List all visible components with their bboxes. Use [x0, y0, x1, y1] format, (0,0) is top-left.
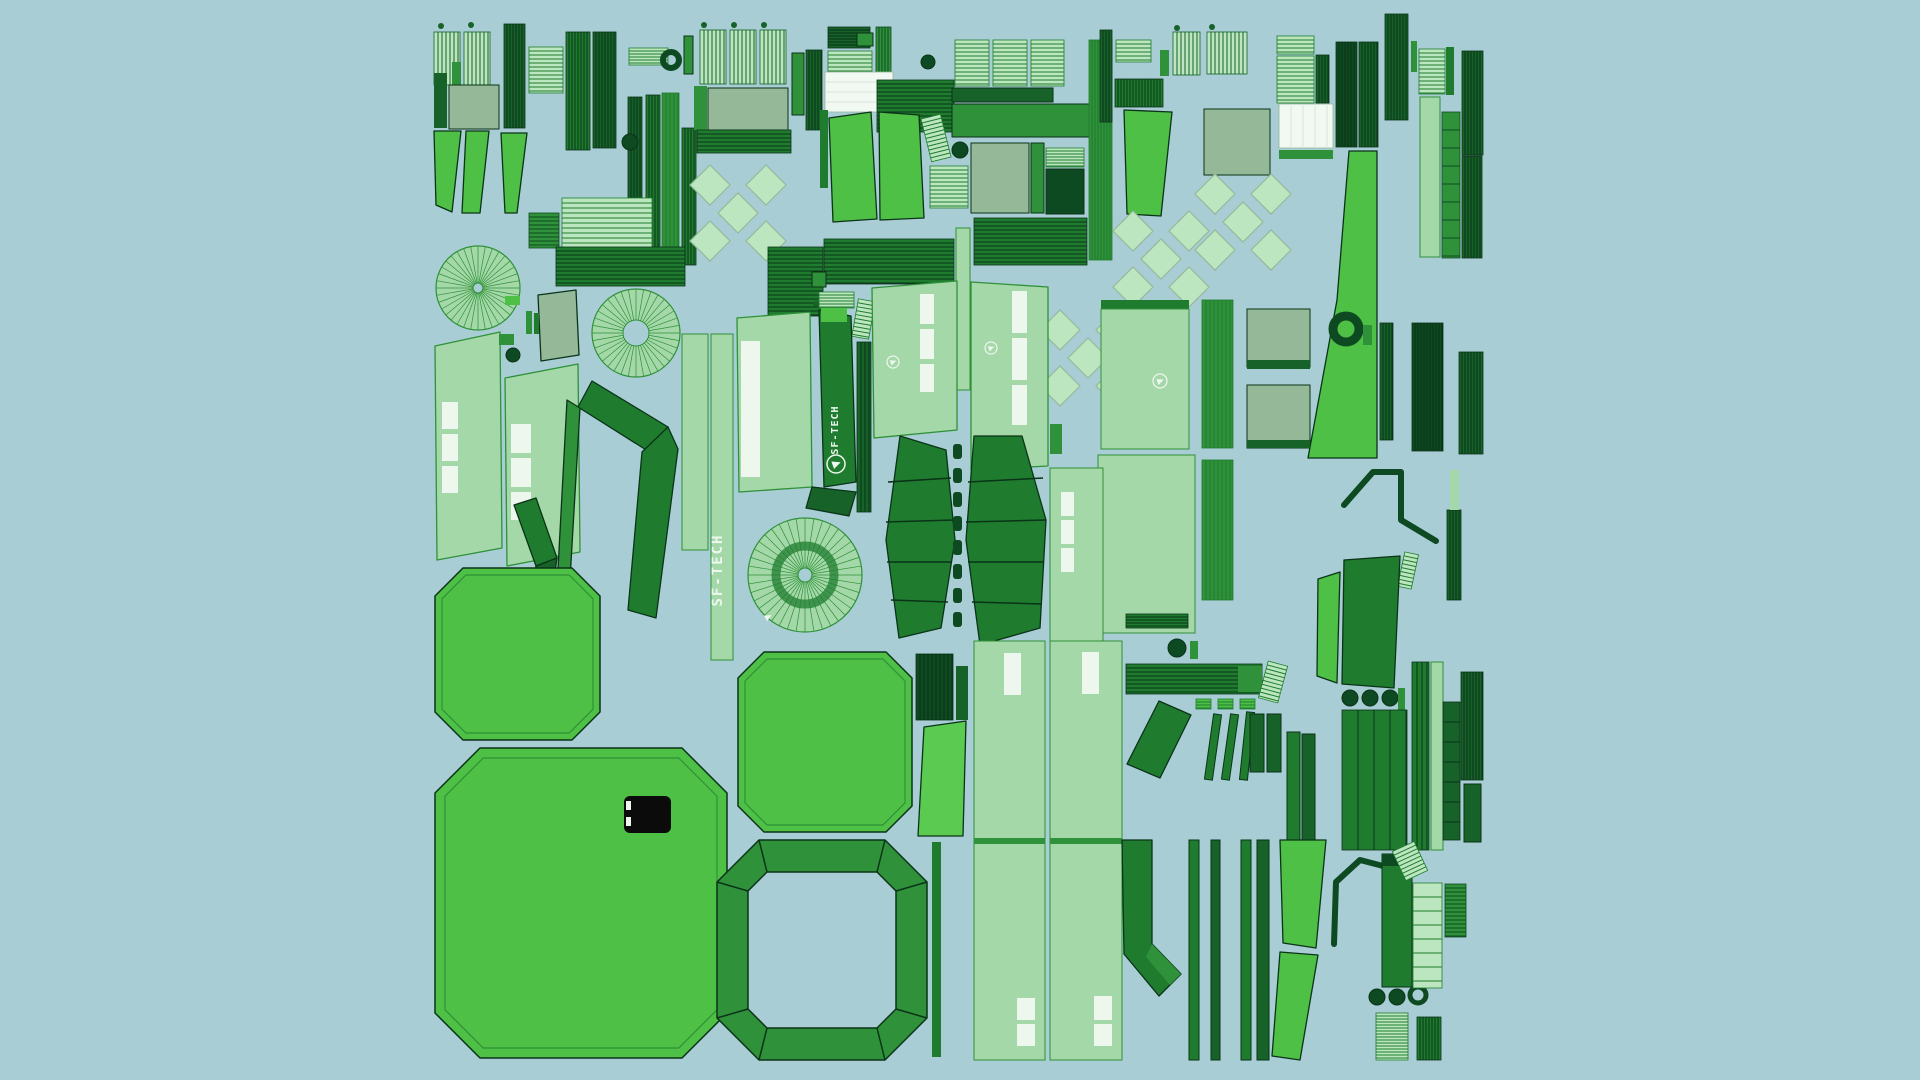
door-panel	[879, 112, 924, 220]
ribbed-column	[1442, 112, 1460, 258]
sliver	[932, 842, 941, 1057]
column	[956, 228, 970, 390]
wedge-panel	[918, 721, 966, 836]
divider	[1050, 838, 1122, 844]
window-glass	[442, 434, 458, 461]
window-glass	[1012, 338, 1027, 380]
antenna-dot	[813, 301, 819, 307]
comb-strip	[700, 30, 726, 84]
column	[682, 334, 708, 550]
ribbed-column	[1443, 702, 1460, 840]
port-pin	[626, 817, 631, 826]
panel	[708, 88, 788, 130]
window-glass	[442, 402, 458, 429]
window-panel	[1101, 309, 1189, 449]
bar	[1190, 641, 1198, 659]
ribbed-band	[974, 218, 1087, 265]
column	[1420, 97, 1440, 257]
bar	[684, 36, 693, 74]
octagon-lid	[435, 568, 600, 740]
window-glass	[1004, 653, 1021, 695]
comb-strip	[1173, 32, 1200, 75]
tall-strip	[974, 641, 1045, 1060]
radial-fan-disc-large	[748, 518, 862, 632]
comb-strip	[730, 30, 756, 84]
bar	[505, 296, 520, 305]
window-glass	[511, 424, 531, 453]
window-glass	[920, 329, 934, 359]
window-panel	[1050, 468, 1103, 648]
antenna-dot	[701, 22, 707, 28]
ribbed-column	[1461, 672, 1483, 780]
hatched-disc	[921, 55, 935, 69]
ribbed-column	[1385, 14, 1408, 120]
striped-block	[1031, 40, 1064, 86]
tall-strip	[1211, 840, 1220, 1060]
panel	[449, 85, 499, 129]
ribbed-barrel	[1115, 79, 1163, 107]
brand-text: SF-TECH	[710, 533, 726, 606]
ribbed-column	[1412, 662, 1429, 850]
ribbed-band	[697, 130, 791, 153]
hatched-disc	[952, 142, 968, 158]
vent-band	[1126, 614, 1188, 628]
striped-block	[1046, 148, 1084, 167]
divider	[974, 838, 1045, 844]
comb-strip	[1207, 32, 1247, 74]
panel	[1247, 309, 1310, 367]
antenna-dot	[761, 22, 767, 28]
hatched-disc	[1382, 690, 1398, 706]
brand-strip	[711, 334, 733, 660]
bar	[956, 666, 968, 720]
ribbed-column	[857, 342, 871, 512]
band	[1247, 440, 1310, 448]
ribbed-block	[916, 654, 953, 720]
tall-strip	[1257, 840, 1269, 1060]
ribbed-column	[1359, 42, 1378, 147]
brand-text: SF-TECH	[710, 533, 726, 606]
ribbed-column	[1462, 156, 1482, 258]
antenna-dot	[438, 23, 444, 29]
bar	[526, 311, 532, 334]
octagon-panel	[738, 652, 912, 832]
band	[1238, 666, 1262, 692]
access-port	[624, 796, 671, 833]
comb-strip	[760, 30, 786, 84]
hatched-disc	[1389, 989, 1405, 1005]
band	[1247, 360, 1310, 369]
hatched-disc	[1168, 639, 1186, 657]
curved-hull-piece	[886, 436, 955, 638]
bar	[1050, 424, 1062, 454]
ribbed-column	[1202, 300, 1233, 448]
paper-stack	[1279, 104, 1333, 148]
mini-strip	[1196, 699, 1211, 709]
texture-atlas-page: SF-TECHSF-TECH	[0, 0, 1920, 1080]
comb-strip	[930, 166, 968, 208]
ribbed-band	[556, 247, 685, 286]
striped-block	[529, 213, 559, 248]
tall-strip	[1241, 840, 1251, 1060]
mini-strip	[1218, 699, 1233, 709]
bar	[1398, 688, 1405, 712]
antenna-dot	[731, 22, 737, 28]
ribbed-column	[566, 32, 590, 150]
band	[952, 104, 1091, 137]
band	[1279, 150, 1333, 159]
brand-text-small: SF-TECH	[830, 405, 841, 454]
column	[1464, 784, 1481, 842]
door-panel	[872, 281, 957, 438]
ribbed-column	[593, 32, 616, 148]
panel	[971, 143, 1029, 213]
bar	[694, 86, 707, 130]
radial-fan-disc	[592, 289, 680, 377]
striped-block	[819, 292, 854, 308]
wedge-panel	[1317, 572, 1340, 683]
bar	[857, 33, 873, 46]
ribbed-column	[1459, 352, 1483, 454]
bar	[499, 334, 514, 345]
striped-block	[993, 40, 1027, 86]
bar	[1363, 325, 1372, 345]
window-glass	[1017, 998, 1035, 1020]
window-glass	[741, 341, 760, 477]
column	[1431, 662, 1443, 850]
brand-band	[819, 310, 856, 487]
bar	[534, 313, 539, 334]
ribbed-band	[824, 239, 954, 284]
hull-panel	[1342, 556, 1400, 688]
ribbed-column	[1316, 55, 1329, 103]
radial-fan-disc	[436, 246, 520, 330]
ribbed-column	[1447, 510, 1461, 600]
window-panel	[1098, 455, 1195, 633]
hatched-disc	[506, 348, 520, 362]
window-glass	[1061, 520, 1074, 544]
bar	[1411, 41, 1417, 72]
ribbed-block	[1417, 1017, 1441, 1060]
ribbed-column	[1412, 323, 1443, 451]
striped-block	[1376, 1013, 1408, 1060]
striped-block	[1419, 49, 1445, 94]
bar	[1160, 50, 1169, 76]
window-glass	[1012, 385, 1027, 425]
ribbed-column	[504, 24, 525, 128]
panel	[1046, 169, 1084, 214]
striped-block	[955, 40, 989, 86]
port-pin	[626, 801, 631, 810]
column	[1267, 714, 1281, 772]
uv-texture-atlas: SF-TECHSF-TECH	[0, 0, 1920, 1080]
antenna-dot	[1174, 25, 1180, 31]
window-glass	[1094, 996, 1112, 1020]
window-glass	[1012, 291, 1027, 333]
band	[1101, 300, 1189, 309]
tall-strip	[1189, 840, 1199, 1060]
ribbed-column	[662, 93, 679, 265]
brand-text-small: SF-TECH	[830, 405, 841, 454]
striped-block	[1277, 56, 1314, 103]
window-glass	[920, 294, 934, 324]
window-glass	[1061, 548, 1074, 572]
ribbed-column	[1380, 323, 1393, 440]
ribbed-column	[1100, 30, 1112, 122]
striped-block	[1445, 884, 1466, 937]
comb-strip	[1116, 40, 1151, 62]
bar	[1031, 143, 1044, 213]
window-glass	[1061, 492, 1074, 516]
hull-plate	[1342, 710, 1407, 850]
door-panel	[829, 112, 877, 222]
window-glass	[920, 364, 934, 392]
antenna-dot	[1209, 24, 1215, 30]
ribbed-column	[1462, 51, 1483, 155]
mini-strip	[1240, 699, 1255, 709]
panel	[1247, 385, 1310, 448]
panel	[538, 290, 579, 361]
striped-block	[529, 47, 563, 93]
ribbed-column	[1202, 460, 1233, 600]
column	[1250, 714, 1264, 772]
panel	[1204, 109, 1270, 175]
bar	[452, 62, 461, 86]
hatch-panel	[1413, 883, 1442, 988]
hatched-disc	[1369, 989, 1385, 1005]
window-glass	[1094, 1024, 1112, 1046]
striped-block	[1277, 36, 1314, 54]
hatched-disc	[1362, 690, 1378, 706]
window-glass	[511, 458, 531, 487]
bar	[812, 272, 826, 287]
bar	[1446, 47, 1454, 95]
comb-strip	[464, 32, 490, 85]
striped-block	[562, 198, 652, 248]
window-glass	[1017, 1024, 1035, 1046]
octagon-crate-lid	[435, 748, 727, 1058]
bar	[820, 110, 828, 188]
ribbed-column	[806, 50, 822, 130]
antenna-dot	[468, 22, 474, 28]
ribbed-column	[1336, 42, 1357, 147]
band	[952, 88, 1053, 102]
band-cap	[821, 308, 847, 322]
hatched-disc	[1342, 690, 1358, 706]
hatched-disc	[622, 134, 638, 150]
bar	[434, 73, 447, 128]
bar	[792, 53, 804, 115]
window-glass	[1082, 652, 1099, 694]
column	[1450, 470, 1459, 510]
window-glass	[442, 466, 458, 493]
